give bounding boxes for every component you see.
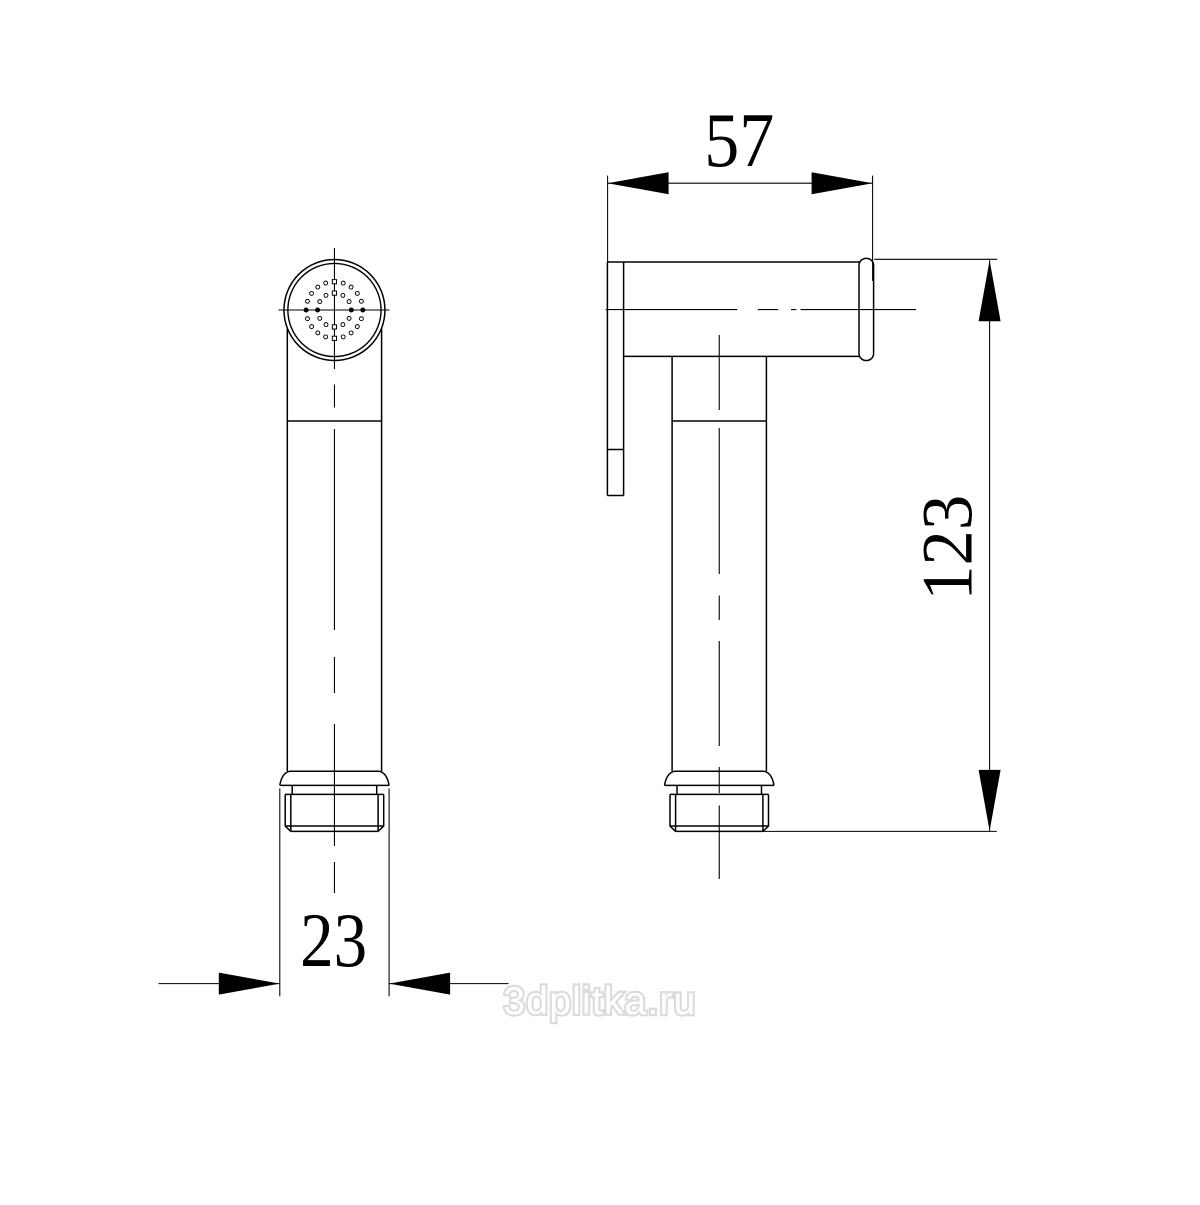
svg-text:23: 23 <box>300 897 367 983</box>
svg-text:123: 123 <box>907 495 987 601</box>
svg-text:3dplitka.ru: 3dplitka.ru <box>503 980 696 1023</box>
svg-text:57: 57 <box>704 97 774 183</box>
